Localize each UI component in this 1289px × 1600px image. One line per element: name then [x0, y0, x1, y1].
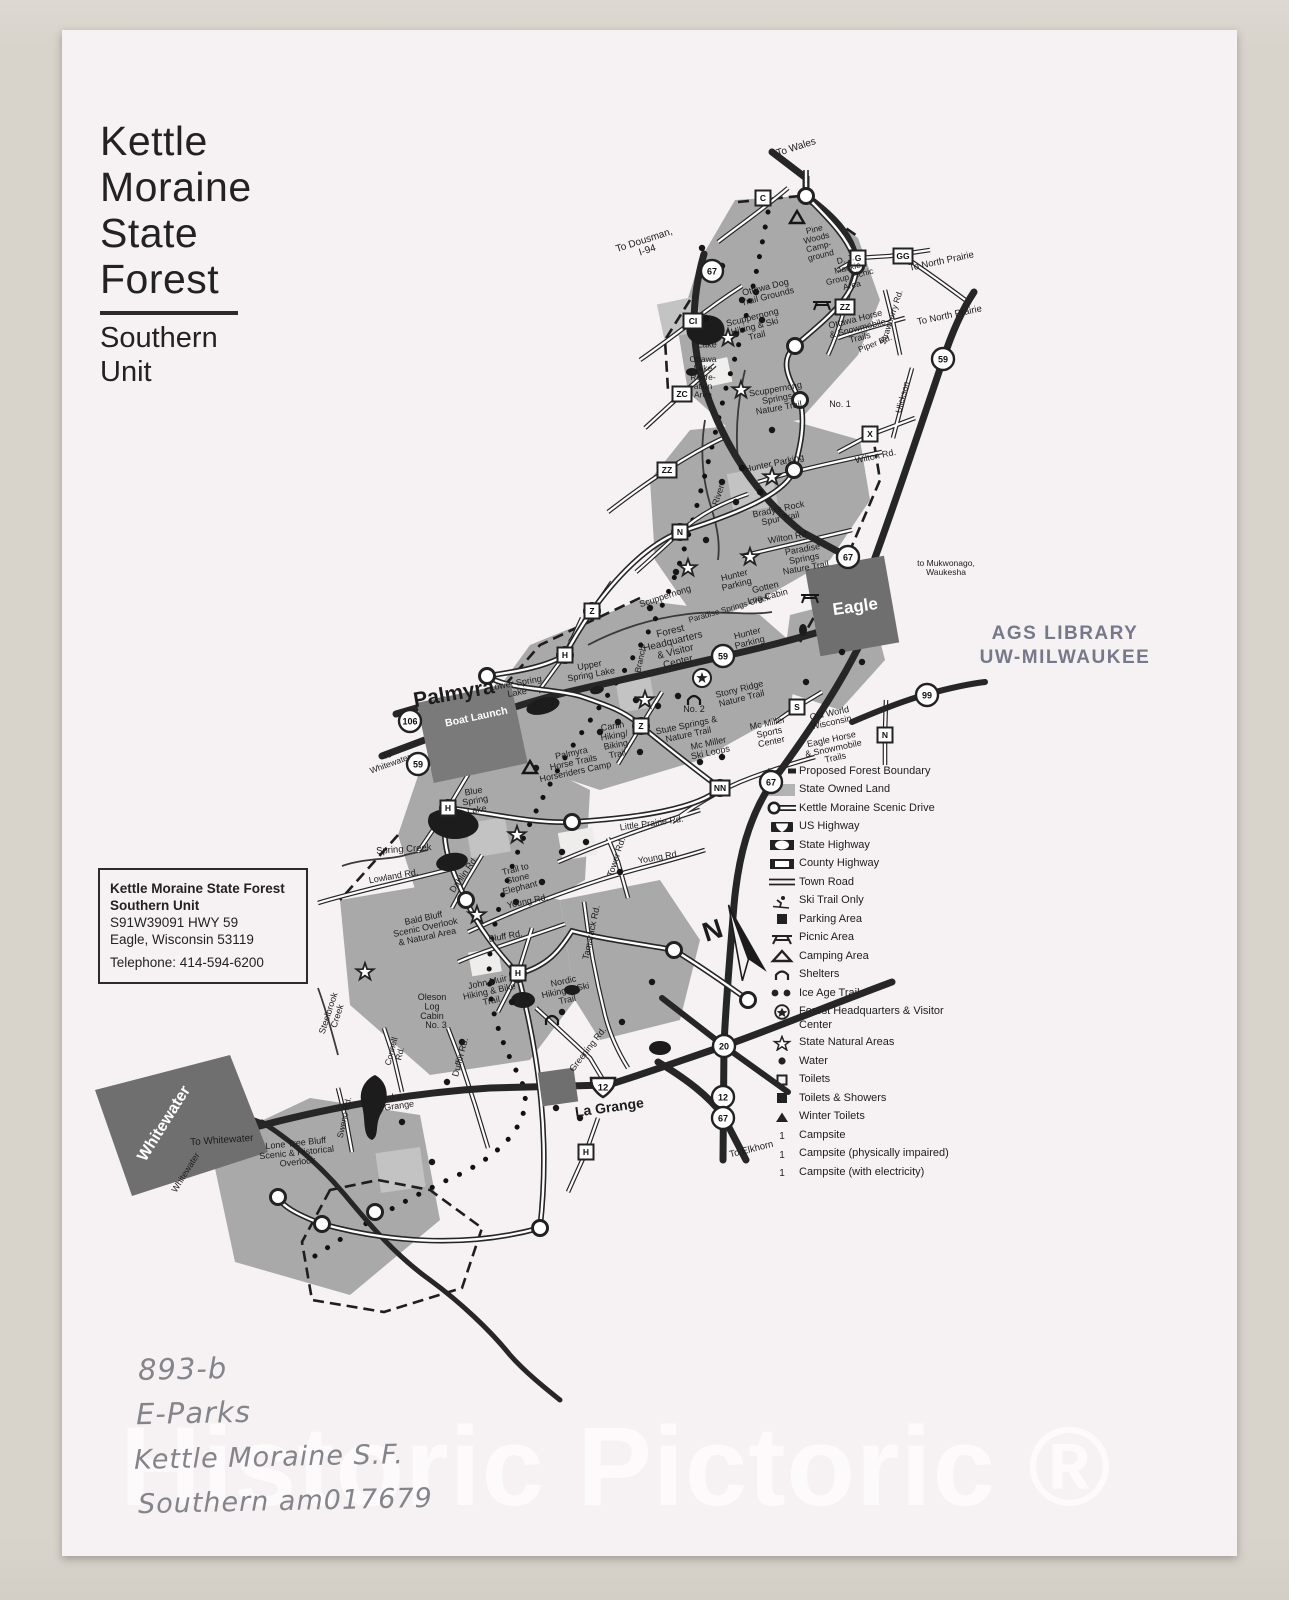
county-highway-letter: H: [583, 1147, 589, 1157]
water-dot: [617, 869, 623, 875]
county-highway-letter: ZC: [676, 389, 687, 399]
water-dot: [539, 879, 545, 885]
state-highway-number: 67: [707, 266, 717, 276]
county-highway-letter: ZZ: [662, 465, 672, 475]
county-highway-letter: N: [882, 730, 888, 740]
county-highway-letter: H: [515, 968, 521, 978]
state-highway-number: 20: [719, 1041, 729, 1051]
water-dot: [553, 1105, 559, 1111]
water-dot: [655, 703, 661, 709]
map-label: To Wales: [775, 136, 817, 159]
water-dot: [399, 1119, 405, 1125]
map-label: Mc MillerSportsCenter: [749, 714, 790, 750]
state-highway-number: 59: [938, 354, 948, 364]
map-label: To North Prairie: [916, 303, 983, 327]
county-highway-letter: Z: [589, 606, 594, 616]
state-highway-number: 99: [922, 690, 932, 700]
water-dot: [619, 1019, 625, 1025]
scenic-drive-node: [533, 1221, 548, 1236]
map-label: No. 2: [683, 704, 705, 714]
water-dot: [649, 979, 655, 985]
water-dot: [509, 999, 515, 1005]
county-highway-letter: ZZ: [840, 302, 850, 312]
water-dot: [757, 489, 763, 495]
town-la-grange-box: [538, 1068, 578, 1107]
map-label: La Grange: [574, 1094, 645, 1120]
map-label: No. 1: [829, 399, 851, 409]
water-dot: [675, 693, 681, 699]
water-dot: [733, 499, 739, 505]
water-dot: [673, 569, 679, 575]
us-highway-number: 12: [598, 1083, 609, 1094]
water-dot: [429, 1159, 435, 1165]
water-dot: [859, 659, 865, 665]
scenic-drive-node: [368, 1205, 383, 1220]
county-highway-letter: H: [445, 803, 451, 813]
county-highway-letter: Z: [638, 721, 643, 731]
scenic-drive-node: [315, 1217, 330, 1232]
county-highway-letter: GG: [896, 251, 910, 261]
scenic-drive-node: [799, 189, 814, 204]
state-highway-number: 67: [766, 777, 776, 787]
water-dot: [769, 427, 775, 433]
county-highway-letter: H: [562, 650, 568, 660]
map-label: Greening Rd.: [567, 1025, 608, 1073]
scenic-drive-node: [788, 339, 803, 354]
county-highway-letter: N: [677, 527, 683, 537]
state-owned-land: [210, 196, 885, 1295]
water-dot: [719, 479, 725, 485]
scenic-drive-node: [565, 815, 580, 830]
scenic-drive-node: [667, 943, 682, 958]
forest-map: N 6759675910659996720126712CGGGZZCIZCZZX…: [0, 0, 1289, 1600]
county-highway-letter: S: [794, 702, 800, 712]
compass-n-label: N: [699, 913, 727, 948]
county-highway-letter: NN: [714, 783, 726, 793]
water-dot: [637, 749, 643, 755]
state-highway-number: 106: [402, 716, 417, 726]
scenic-drive-node: [741, 993, 756, 1008]
water-dot: [444, 1079, 450, 1085]
map-label: Eagle Horse& SnowmobileTrails: [802, 728, 864, 768]
water-dot: [703, 315, 709, 321]
map-label: Ulickson: [893, 380, 911, 414]
water-dot: [699, 245, 705, 251]
map-label: No. 3: [425, 1020, 447, 1030]
water-dot: [803, 679, 809, 685]
state-highway-number: 59: [718, 651, 728, 661]
map-label: to Mukwonago,Waukesha: [917, 558, 975, 577]
state-highway-number: 67: [843, 552, 853, 562]
map-label: To Dousman,I-94: [615, 226, 678, 265]
county-highway-letter: X: [867, 429, 873, 439]
map-label: Old WorldWisconsin: [808, 704, 852, 732]
water-dot: [559, 1009, 565, 1015]
scenic-drive-node: [459, 893, 474, 908]
county-highway-letter: CI: [689, 316, 698, 326]
water-dot: [839, 649, 845, 655]
water-dot: [703, 537, 709, 543]
county-highway-letter: C: [760, 193, 766, 203]
state-highway-number: 67: [718, 1113, 728, 1123]
state-highway-number: 12: [718, 1092, 728, 1102]
water-dot: [583, 839, 589, 845]
scenic-drive-node: [271, 1190, 286, 1205]
water-dot: [533, 765, 539, 771]
water-dot: [559, 849, 565, 855]
state-highway-number: 59: [413, 759, 423, 769]
